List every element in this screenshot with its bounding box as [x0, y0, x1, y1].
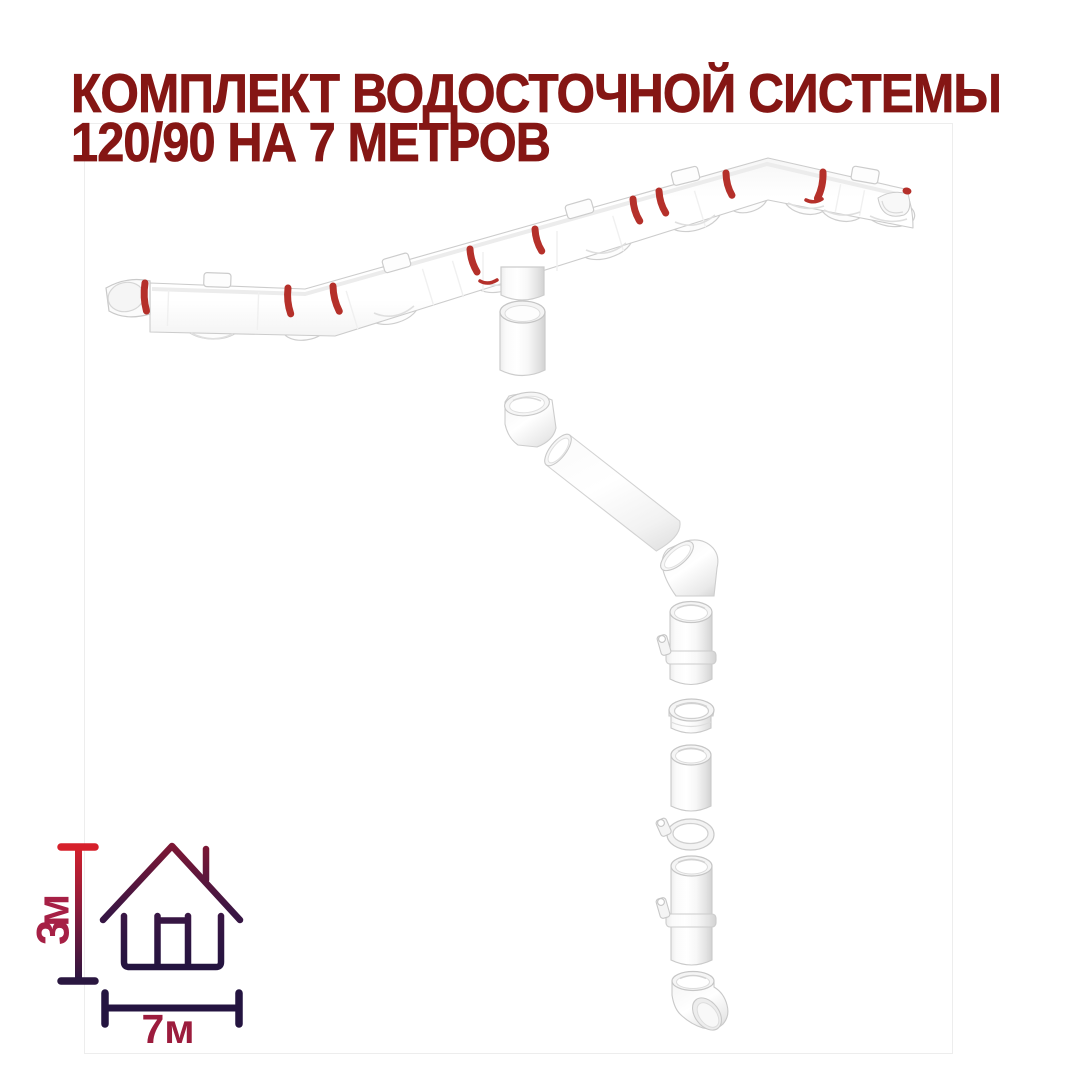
svg-text:7м: 7м	[142, 1006, 195, 1052]
svg-text:3м: 3м	[28, 896, 79, 945]
